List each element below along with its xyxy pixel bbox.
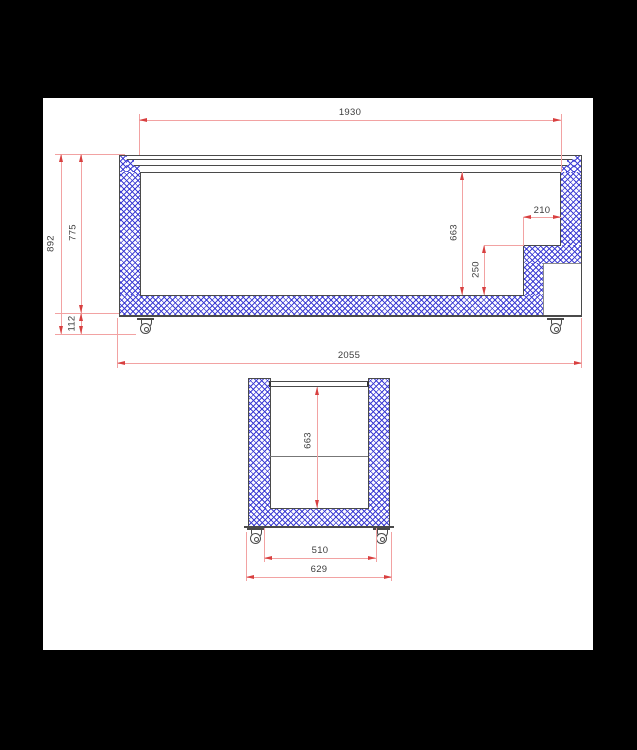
dimension-line bbox=[61, 154, 62, 334]
dim-lid-width: 1930 bbox=[328, 107, 372, 118]
dimension-line bbox=[117, 363, 582, 364]
wall-top-line bbox=[368, 378, 390, 379]
left-outer-wall-line bbox=[119, 155, 120, 315]
dim-interior-depth: 663 bbox=[449, 213, 460, 253]
drawing-paper: 1930 892 775 112 663 250 bbox=[43, 98, 593, 650]
lid-profile-line bbox=[134, 165, 567, 166]
right-outer-wall-line bbox=[581, 155, 582, 315]
dimension-line bbox=[81, 154, 82, 313]
dim-overall-height: 892 bbox=[46, 224, 57, 264]
arrowhead bbox=[59, 154, 63, 162]
cavity-left-wall-line bbox=[270, 378, 271, 508]
dim-step-depth: 210 bbox=[520, 205, 564, 216]
arrowhead bbox=[59, 326, 63, 334]
arrowhead bbox=[79, 313, 83, 321]
bottom-insulation bbox=[119, 295, 543, 315]
base-line bbox=[119, 315, 582, 317]
dim-interior-depth: 663 bbox=[303, 421, 314, 461]
compressor-compartment bbox=[543, 263, 581, 315]
extension-line bbox=[55, 313, 119, 314]
extension-line bbox=[523, 217, 524, 246]
lid-profile-line bbox=[140, 172, 560, 173]
lid-bar bbox=[269, 381, 369, 387]
left-outer-wall-line bbox=[248, 378, 249, 526]
lid-profile-line bbox=[120, 155, 581, 156]
extension-line bbox=[391, 532, 392, 581]
step-edge-line bbox=[270, 456, 368, 457]
dim-overall-length: 2055 bbox=[327, 350, 371, 361]
left-wall-insulation-cap bbox=[134, 165, 140, 172]
arrowhead bbox=[384, 575, 392, 579]
dim-base-clearance: 112 bbox=[67, 304, 78, 344]
left-wall-insulation bbox=[119, 172, 140, 315]
arrowhead bbox=[246, 575, 254, 579]
arrowhead bbox=[574, 361, 582, 365]
right-outer-wall-line bbox=[389, 378, 390, 526]
dimension-line bbox=[462, 172, 463, 295]
step-top-line bbox=[523, 245, 561, 246]
dim-wheel-track: 510 bbox=[298, 545, 342, 556]
dim-body-height: 775 bbox=[68, 213, 79, 253]
left-wall-insulation-cap bbox=[119, 155, 127, 172]
step-insulation-horizontal bbox=[523, 245, 581, 263]
arrowhead bbox=[482, 287, 486, 295]
dimension-line bbox=[139, 120, 561, 121]
arrowhead bbox=[315, 387, 319, 395]
arrowhead bbox=[315, 500, 319, 508]
arrowhead bbox=[117, 361, 125, 365]
wall-top-line bbox=[248, 378, 270, 379]
left-wall-insulation bbox=[248, 378, 270, 526]
caster-wheel bbox=[135, 318, 157, 335]
dimension-line bbox=[317, 387, 318, 508]
extension-line bbox=[376, 528, 377, 562]
arrowhead bbox=[79, 326, 83, 334]
extension-line bbox=[484, 245, 524, 246]
arrowhead bbox=[368, 556, 376, 560]
arrowhead bbox=[79, 154, 83, 162]
caster-hub bbox=[254, 537, 259, 542]
dim-step-height: 250 bbox=[471, 250, 482, 290]
cavity-floor-line bbox=[270, 508, 369, 509]
arrowhead bbox=[482, 245, 486, 253]
dimension-line bbox=[264, 558, 376, 559]
lid-profile-line bbox=[127, 159, 572, 160]
cavity-floor-line bbox=[140, 295, 524, 296]
arrowhead bbox=[553, 118, 561, 122]
right-wall-insulation bbox=[368, 378, 390, 526]
arrowhead bbox=[460, 287, 464, 295]
bottom-insulation bbox=[248, 508, 390, 526]
arrowhead bbox=[460, 172, 464, 180]
caster-wheel bbox=[371, 528, 393, 545]
arrowhead bbox=[264, 556, 272, 560]
dimension-line bbox=[246, 577, 392, 578]
caster-hub bbox=[380, 537, 385, 542]
extension-line bbox=[561, 114, 562, 172]
caster-wheel bbox=[545, 318, 567, 335]
step-insulation-vertical bbox=[523, 263, 543, 295]
cavity-right-wall-line bbox=[368, 378, 369, 508]
left-wall-insulation-cap bbox=[127, 159, 134, 172]
caster-hub bbox=[144, 327, 149, 332]
arrowhead bbox=[79, 305, 83, 313]
extension-line bbox=[246, 532, 247, 581]
caster-hub bbox=[554, 327, 559, 332]
extension-line bbox=[55, 154, 125, 155]
right-wall-insulation-cap bbox=[567, 159, 574, 172]
cavity-left-wall-line bbox=[140, 172, 141, 295]
arrowhead bbox=[139, 118, 147, 122]
step-face-line bbox=[523, 245, 524, 295]
dim-overall-width: 629 bbox=[297, 564, 341, 575]
right-wall-insulation-cap bbox=[574, 155, 581, 172]
